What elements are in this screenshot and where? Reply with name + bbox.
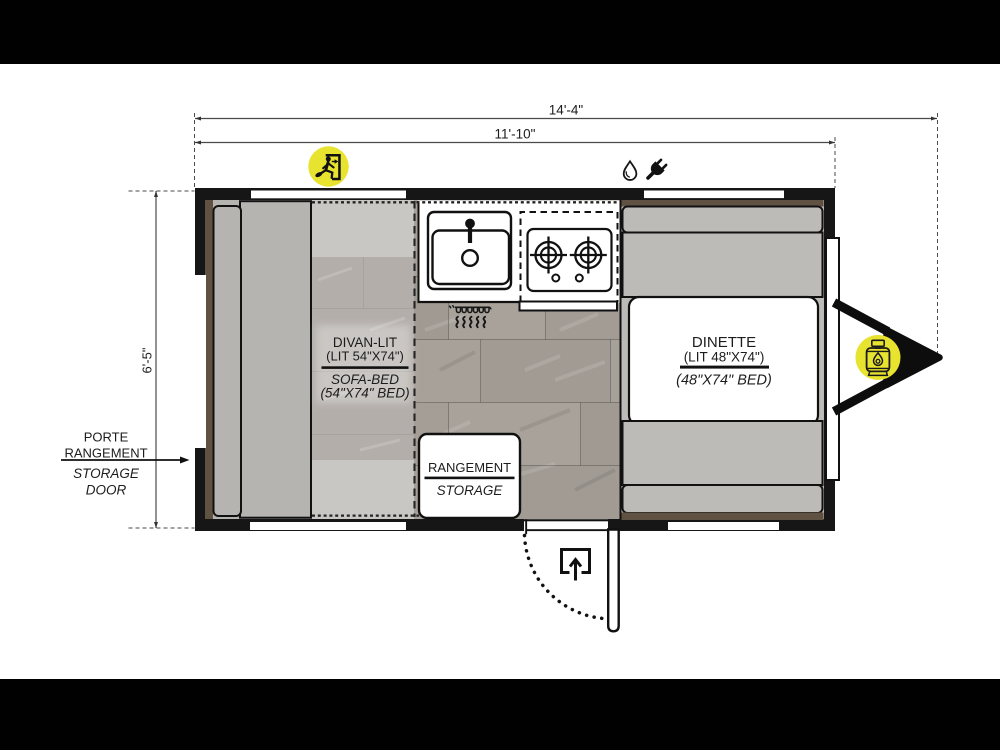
svg-text:STORAGE: STORAGE xyxy=(437,483,504,498)
svg-text:DOOR: DOOR xyxy=(86,483,127,498)
svg-text:14'-4": 14'-4" xyxy=(549,103,584,118)
svg-text:PORTE: PORTE xyxy=(84,430,129,445)
svg-text:(LIT 54"X74"): (LIT 54"X74") xyxy=(326,349,404,364)
svg-text:6'-5": 6'-5" xyxy=(140,347,155,373)
svg-text:RANGEMENT: RANGEMENT xyxy=(428,460,511,475)
svg-text:(LIT 48"X74"): (LIT 48"X74") xyxy=(684,350,765,365)
svg-text:DINETTE: DINETTE xyxy=(692,334,756,351)
svg-text:(54"X74" BED): (54"X74" BED) xyxy=(320,386,409,401)
svg-text:RANGEMENT: RANGEMENT xyxy=(64,446,147,461)
svg-text:11'-10": 11'-10" xyxy=(495,127,536,142)
svg-text:STORAGE: STORAGE xyxy=(73,466,140,481)
svg-text:(48"X74" BED): (48"X74" BED) xyxy=(676,373,772,389)
